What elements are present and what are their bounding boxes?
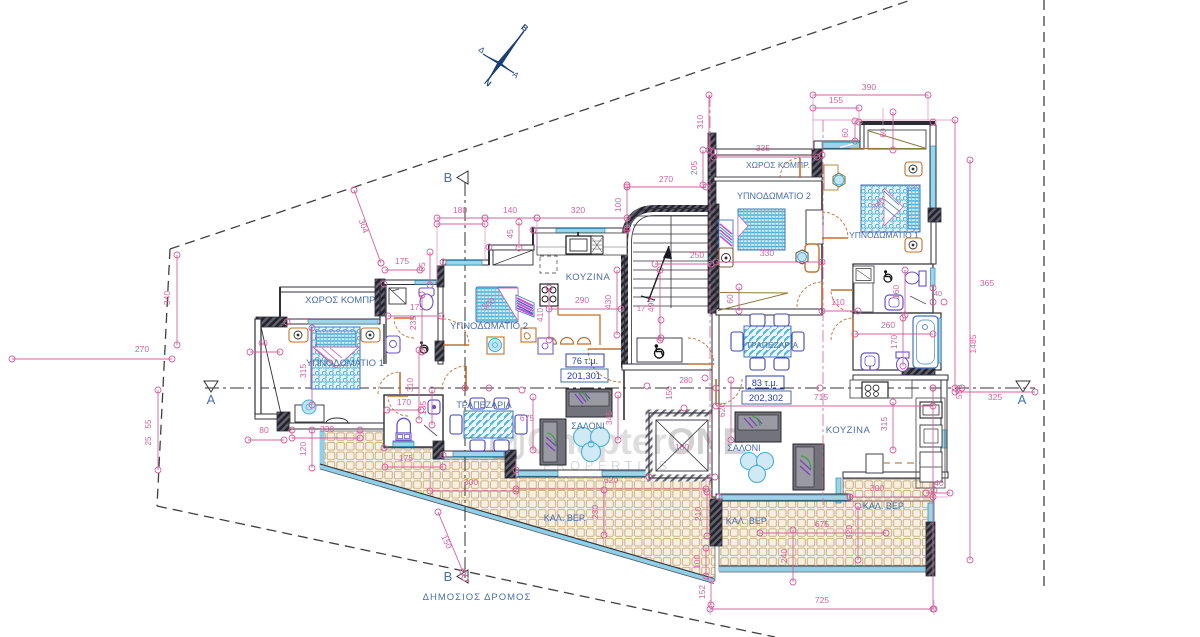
svg-text:80: 80 [259,425,269,435]
svg-text:180: 180 [453,205,467,215]
svg-text:620: 620 [717,403,727,417]
svg-text:A: A [1018,392,1027,407]
svg-text:320: 320 [571,205,585,215]
svg-text:340: 340 [162,291,172,305]
svg-text:1485: 1485 [968,334,978,353]
svg-text:17: 17 [637,304,645,313]
svg-text:160: 160 [891,285,901,299]
svg-text:150: 150 [665,386,674,400]
svg-text:100: 100 [613,198,623,212]
svg-text:310: 310 [405,378,415,392]
svg-text:ΧΩΡΟΣ ΚΟΜΠΡ.: ΧΩΡΟΣ ΚΟΜΠΡ. [305,295,377,306]
svg-text:365: 365 [980,278,994,288]
svg-text:240: 240 [779,549,789,563]
svg-text:260: 260 [881,320,895,330]
svg-text:60: 60 [258,338,268,348]
svg-text:B: B [444,170,453,185]
svg-text:325: 325 [988,392,1002,402]
svg-text:675: 675 [815,519,829,529]
svg-text:140: 140 [503,205,517,215]
svg-text:330: 330 [320,424,334,434]
svg-text:490: 490 [646,298,656,312]
svg-text:ΤΡΑΠΕΖΑΡΙΑ: ΤΡΑΠΕΖΑΡΙΑ [746,340,799,350]
svg-text:170: 170 [889,335,899,349]
svg-text:ΤΡΑΠΕΖΑΡΙΑ: ΤΡΑΠΕΖΑΡΙΑ [456,400,511,410]
svg-text:ΚΟΥΖΙΝΑ: ΚΟΥΖΙΝΑ [566,272,611,283]
svg-text:65: 65 [417,262,427,272]
svg-text:ΣΑΛΟΝΙ: ΣΑΛΟΝΙ [727,443,760,453]
svg-text:201,301: 201,301 [567,371,601,382]
svg-text:A: A [207,392,216,407]
svg-text:270: 270 [135,344,149,354]
svg-text:270: 270 [659,174,673,184]
svg-text:345: 345 [604,411,614,425]
svg-text:620: 620 [604,475,618,485]
svg-text:76 τ.μ.: 76 τ.μ. [572,356,598,366]
svg-text:310: 310 [695,115,705,129]
svg-text:ΥΠΝΟΔΩΜΑΤΙΟ 2: ΥΠΝΟΔΩΜΑΤΙΟ 2 [737,191,811,201]
svg-text:320: 320 [844,525,854,539]
svg-text:ΧΩΡΟΣ ΚΟΜΠΡ.: ΧΩΡΟΣ ΚΟΜΠΡ. [746,160,810,170]
svg-text:55: 55 [144,419,153,428]
svg-text:ΣΑΛΟΝΙ: ΣΑΛΟΝΙ [571,421,604,431]
svg-text:250: 250 [690,250,704,260]
svg-text:202,302: 202,302 [749,393,783,404]
svg-text:175: 175 [395,256,409,266]
svg-text:335: 335 [756,143,770,153]
svg-text:B: B [444,569,453,584]
svg-text:300: 300 [870,483,884,493]
svg-text:175: 175 [399,453,413,463]
svg-text:152: 152 [697,585,707,599]
svg-text:210: 210 [693,507,703,521]
svg-text:235: 235 [408,316,418,330]
svg-text:170: 170 [397,397,411,407]
svg-text:205: 205 [689,161,699,175]
svg-text:ΔΗΜΟΣΙΟΣ ΔΡΟΜΟΣ: ΔΗΜΟΣΙΟΣ ΔΡΟΜΟΣ [423,592,532,603]
svg-text:60: 60 [725,294,735,304]
svg-text:ΚΟΥΖΙΝΑ: ΚΟΥΖΙΝΑ [826,425,871,436]
svg-text:675: 675 [520,413,534,423]
svg-text:40: 40 [934,478,944,488]
svg-text:725: 725 [815,595,829,605]
svg-text:315: 315 [879,417,889,431]
svg-text:ΥΠΝΟΔΩΜΑΤΙΟ 1: ΥΠΝΟΔΩΜΑΤΙΟ 1 [849,230,919,240]
svg-text:430: 430 [603,295,613,309]
svg-text:25: 25 [144,436,153,445]
svg-text:110: 110 [831,297,845,307]
svg-text:ΥΠΝΟΔΩΜΑΤΙΟ 2: ΥΠΝΟΔΩΜΑΤΙΟ 2 [450,321,528,332]
svg-text:120: 120 [298,442,308,456]
svg-text:280: 280 [679,376,693,385]
svg-text:410: 410 [535,308,545,322]
svg-text:290: 290 [575,295,589,305]
svg-text:300: 300 [464,477,478,487]
svg-text:ΚΑΛ. ΒΕΡ.: ΚΑΛ. ΒΕΡ. [863,501,905,511]
svg-text:100: 100 [692,555,702,569]
svg-text:ΥΠΝΟΔΩΜΑΤΙΟ 1: ΥΠΝΟΔΩΜΑΤΙΟ 1 [306,358,384,369]
svg-text:230: 230 [590,505,600,519]
svg-text:60: 60 [878,128,888,138]
svg-text:135: 135 [418,401,428,415]
svg-text:45: 45 [505,229,515,239]
svg-text:83 τ.μ.: 83 τ.μ. [752,378,778,388]
svg-text:180: 180 [675,442,689,452]
svg-text:715: 715 [814,392,828,402]
svg-text:330: 330 [760,248,774,258]
svg-text:ΚΑΛ. ΒΕΡ.: ΚΑΛ. ΒΕΡ. [544,513,586,523]
svg-text:390: 390 [862,82,876,92]
svg-text:155: 155 [829,95,843,105]
svg-text:ΚΑΛ. ΒΕΡ.: ΚΑΛ. ΒΕΡ. [726,516,768,526]
svg-text:60: 60 [840,128,850,138]
